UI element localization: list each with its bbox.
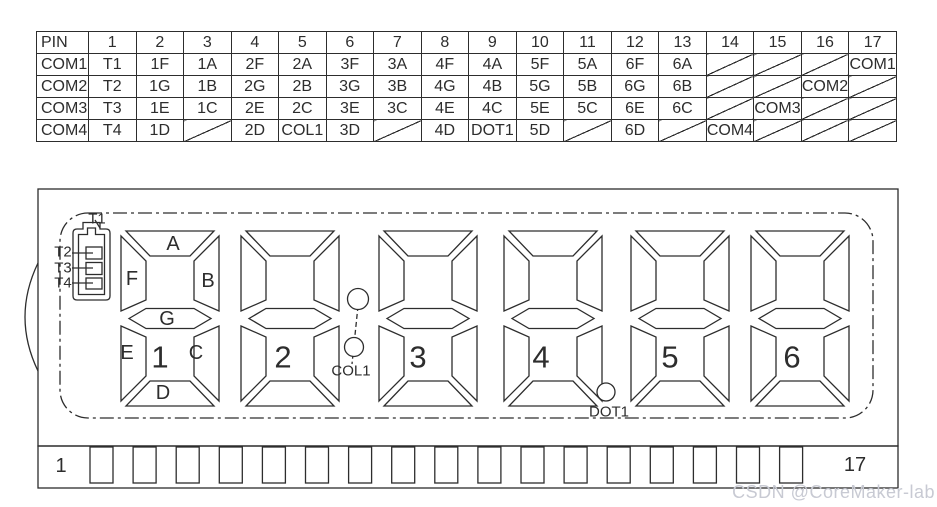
digit-1-number: 1 [151,342,168,373]
segment-g-outline [759,309,841,329]
segment-a-outline [246,231,334,256]
pin-rect [650,447,673,483]
digit-4-number: 4 [532,342,549,373]
segment-b-label: B [201,271,214,291]
seven-segment-digit-5 [631,231,729,406]
digit-3-number: 3 [409,342,426,373]
colon-icon [345,289,369,365]
pin-rect [133,447,156,483]
seven-segment-digit-6 [751,231,849,406]
segment-a-outline [756,231,844,256]
pin-rect [478,447,501,483]
segment-d-outline [246,381,334,406]
pin-rect [607,447,630,483]
segment-a-outline [636,231,724,256]
dot-icon [597,383,615,401]
segment-d-outline [384,381,472,406]
segment-g-outline [249,309,331,329]
digit-6-number: 6 [783,342,800,373]
segment-e-label: E [120,343,133,363]
pin-rect [392,447,415,483]
battery-t4-label: T4 [54,276,72,291]
battery-t3-label: T3 [54,261,72,276]
segment-d-outline [756,381,844,406]
segment-g-outline [639,309,721,329]
battery-t1-label: T1 [88,212,106,227]
digit-5-number: 5 [661,342,678,373]
segment-a-label: A [166,234,179,254]
pin-rect [349,447,372,483]
segment-c-label: C [189,343,203,363]
glass-bump [25,263,38,371]
pin-rect [521,447,544,483]
seven-segment-digit-2 [241,231,339,406]
pins-layer [90,447,803,483]
pin-rect [306,447,329,483]
pin-rect [176,447,199,483]
pin-rect [262,447,285,483]
colon-label: COL1 [331,364,370,379]
pin-rect [564,447,587,483]
battery-icon [72,220,110,300]
digits-layer [121,231,849,406]
colon-upper-dot [348,289,369,310]
segment-f-label: F [126,269,138,289]
segment-g-outline [387,309,469,329]
segment-g-outline [512,309,594,329]
watermark: CSDN @CoreMaker-lab [732,482,935,503]
dot-label: DOT1 [589,405,629,420]
pin-rect [780,447,803,483]
segment-d-outline [636,381,724,406]
battery-t2-label: T2 [54,245,72,260]
pin-rect [435,447,458,483]
seven-segment-digit-4 [504,231,602,406]
segment-g-label: G [159,309,175,329]
segment-d-label: D [156,383,170,403]
segment-a-outline [509,231,597,256]
seven-segment-digit-3 [379,231,477,406]
colon-lower-dot [345,338,364,357]
pin-17-label: 17 [844,455,866,475]
pin-rect [219,447,242,483]
segment-a-outline [384,231,472,256]
pin-rect [737,447,760,483]
pin-rect [90,447,113,483]
lcd-module-drawing [0,0,937,507]
digit-2-number: 2 [274,342,291,373]
pin-rect [693,447,716,483]
pin-1-label: 1 [55,456,66,476]
battery-outline-inner [79,228,105,295]
segment-d-outline [509,381,597,406]
